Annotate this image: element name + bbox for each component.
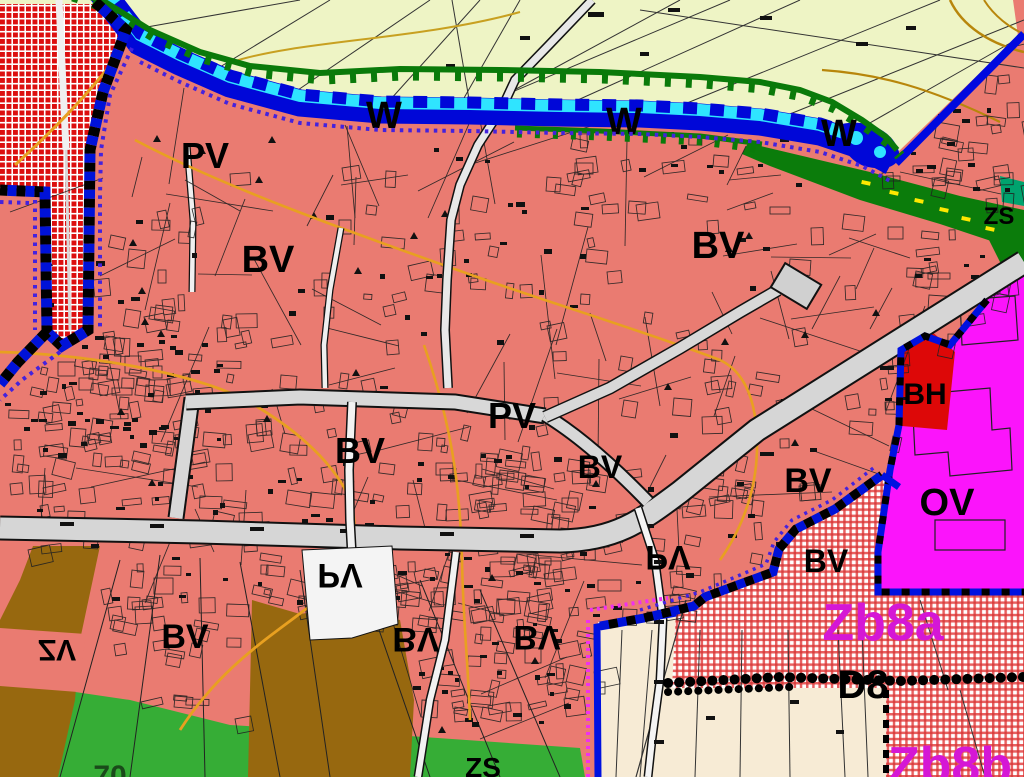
svg-text:BV: BV [392,620,440,658]
svg-text:BV: BV [784,462,832,500]
svg-text:Zb8b: Zb8b [888,737,1012,777]
svg-text:BV: BV [335,430,385,471]
svg-text:BV: BV [242,239,295,281]
svg-text:BV: BV [578,449,623,485]
svg-text:ZV: ZV [38,633,76,666]
svg-text:PV: PV [181,135,229,176]
svg-text:70: 70 [93,760,126,777]
svg-text:W: W [606,101,642,143]
svg-text:Zb8a: Zb8a [822,594,944,652]
svg-text:BV: BV [513,618,561,656]
svg-text:PV: PV [317,556,363,594]
svg-text:PV: PV [645,538,691,576]
svg-text:ZS: ZS [465,752,501,777]
svg-text:BH: BH [903,378,946,411]
svg-text:BV: BV [161,618,209,656]
svg-text:ZS: ZS [984,203,1015,230]
svg-text:PV: PV [488,395,536,436]
svg-text:W: W [821,113,857,155]
svg-text:BV: BV [692,225,745,267]
svg-text:BV: BV [804,543,849,579]
svg-text:D8: D8 [837,663,888,707]
svg-text:OV: OV [920,482,976,524]
